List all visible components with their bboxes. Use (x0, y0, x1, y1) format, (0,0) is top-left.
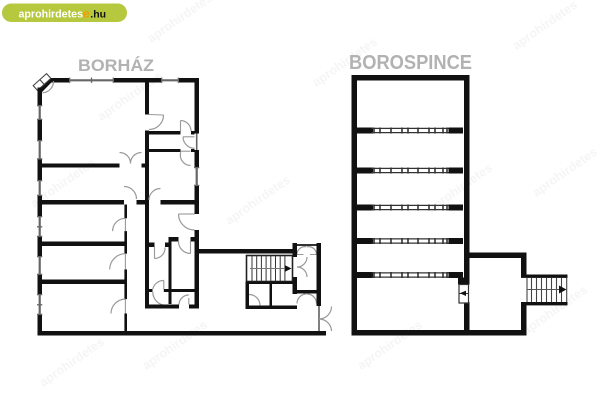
svg-text:BORHÁZ: BORHÁZ (78, 56, 154, 75)
svg-text:.hu: .hu (90, 8, 106, 20)
svg-text:BOROSPINCE: BOROSPINCE (349, 52, 472, 74)
svg-text:aprohirdetes: aprohirdetes (19, 8, 84, 20)
svg-text:e: e (83, 7, 90, 21)
